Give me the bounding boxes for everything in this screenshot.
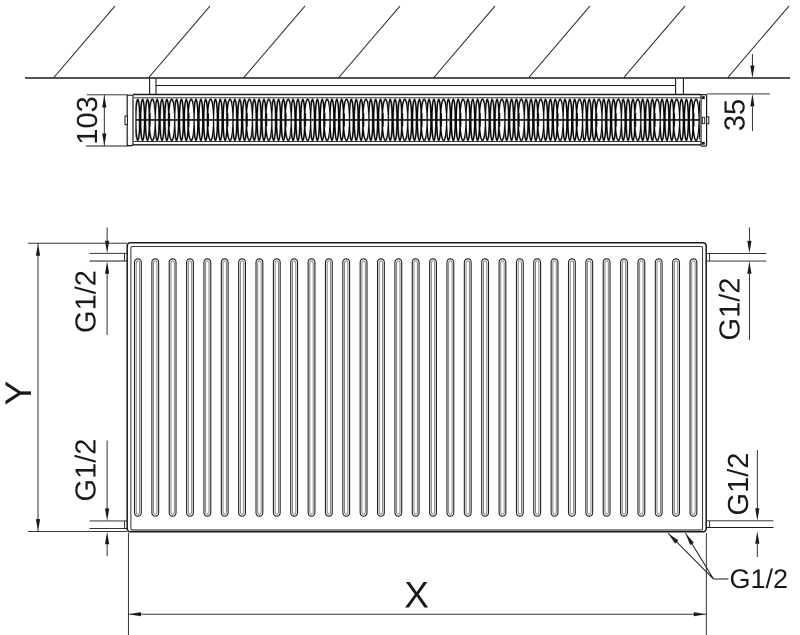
svg-text:103: 103 xyxy=(72,96,104,144)
svg-text:35: 35 xyxy=(720,99,752,131)
svg-text:X: X xyxy=(404,575,429,616)
svg-text:G1/2: G1/2 xyxy=(71,439,103,502)
svg-text:Y: Y xyxy=(0,381,39,406)
svg-text:G1/2: G1/2 xyxy=(715,278,747,341)
svg-text:G1/2: G1/2 xyxy=(71,270,103,333)
svg-text:G1/2: G1/2 xyxy=(723,453,755,516)
svg-text:G1/2: G1/2 xyxy=(730,564,789,594)
